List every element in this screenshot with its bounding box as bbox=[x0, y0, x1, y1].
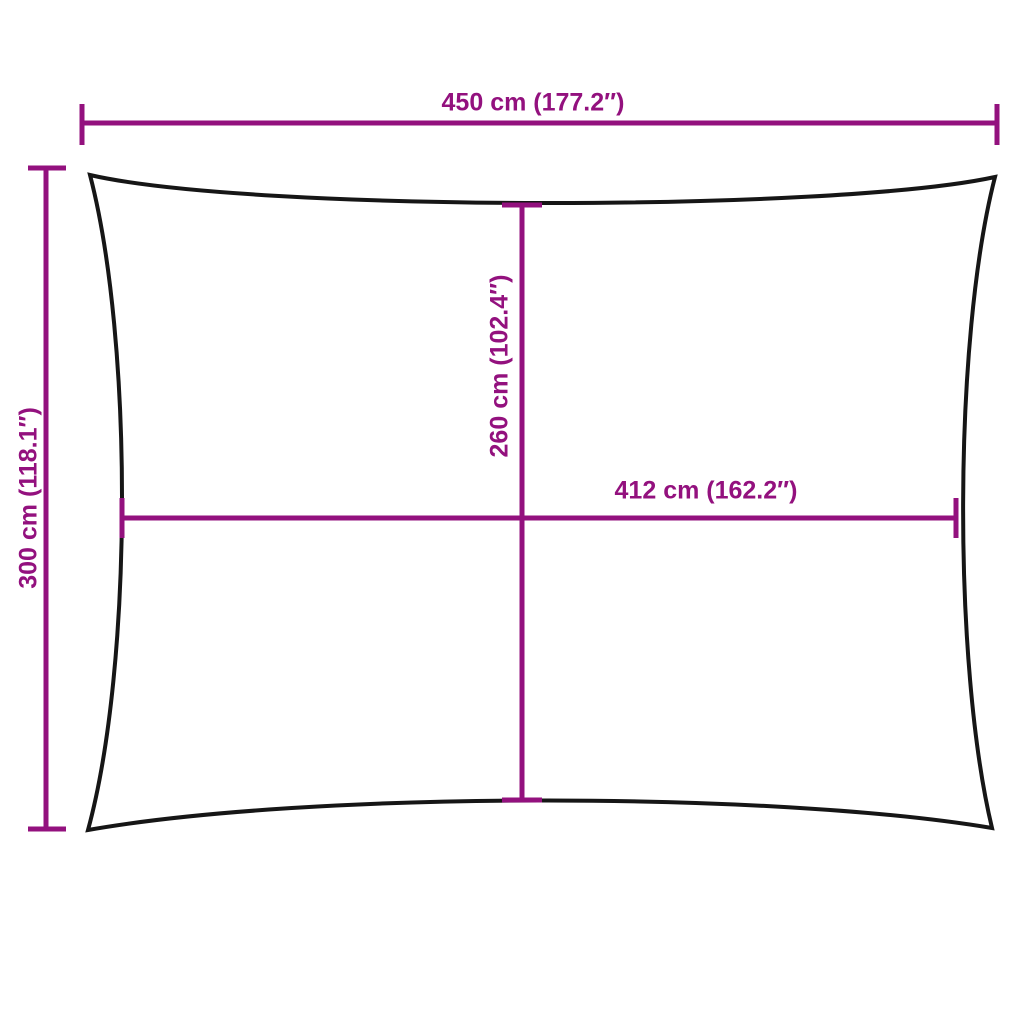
width-dimension-label: 450 cm (177.2″) bbox=[442, 89, 625, 118]
diagram-canvas bbox=[0, 0, 1024, 1024]
sail-outline bbox=[88, 175, 995, 830]
inner-width-dimension-line bbox=[122, 498, 956, 538]
inner-height-dimension-label: 260 cm (102.4″) bbox=[486, 275, 515, 458]
inner-width-dimension-label: 412 cm (162.2″) bbox=[615, 477, 798, 506]
sail-dimension-diagram: 450 cm (177.2″) 300 cm (118.1″) 260 cm (… bbox=[0, 0, 1024, 1024]
height-dimension-label: 300 cm (118.1″) bbox=[15, 407, 44, 589]
